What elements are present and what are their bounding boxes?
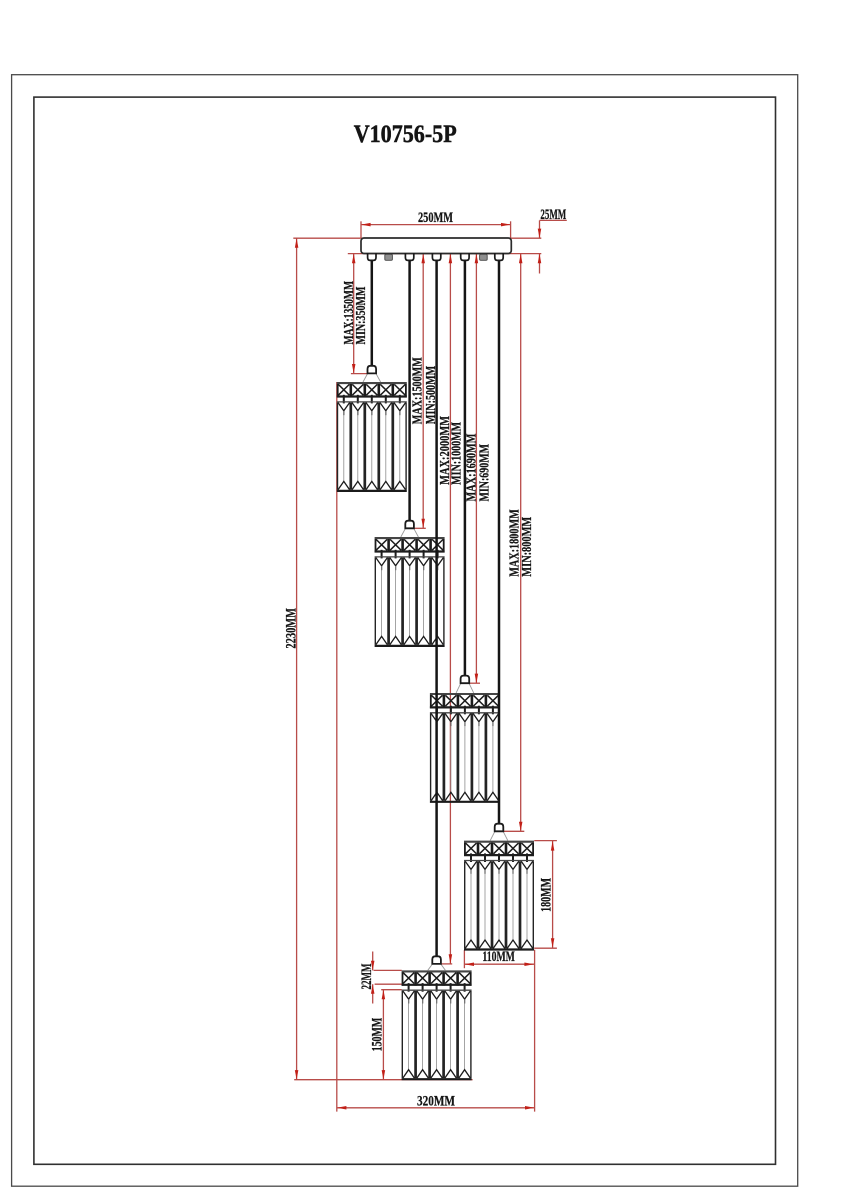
svg-text:180MM: 180MM bbox=[538, 878, 554, 912]
svg-text:25MM: 25MM bbox=[540, 206, 566, 223]
svg-text:MIN:500MM: MIN:500MM bbox=[422, 365, 438, 424]
svg-text:320MM: 320MM bbox=[417, 1092, 455, 1109]
svg-text:110MM: 110MM bbox=[482, 948, 515, 964]
svg-text:2230MM: 2230MM bbox=[283, 608, 299, 649]
svg-text:250MM: 250MM bbox=[418, 209, 453, 225]
svg-text:MIN:350MM: MIN:350MM bbox=[352, 286, 368, 344]
svg-text:V10756-5P: V10756-5P bbox=[354, 121, 457, 149]
svg-text:MIN:800MM: MIN:800MM bbox=[518, 516, 534, 576]
svg-text:150MM: 150MM bbox=[369, 1018, 385, 1052]
svg-text:MIN:690MM: MIN:690MM bbox=[476, 444, 492, 502]
svg-text:22MM: 22MM bbox=[358, 963, 375, 989]
svg-text:MIN:1000MM: MIN:1000MM bbox=[448, 422, 464, 485]
